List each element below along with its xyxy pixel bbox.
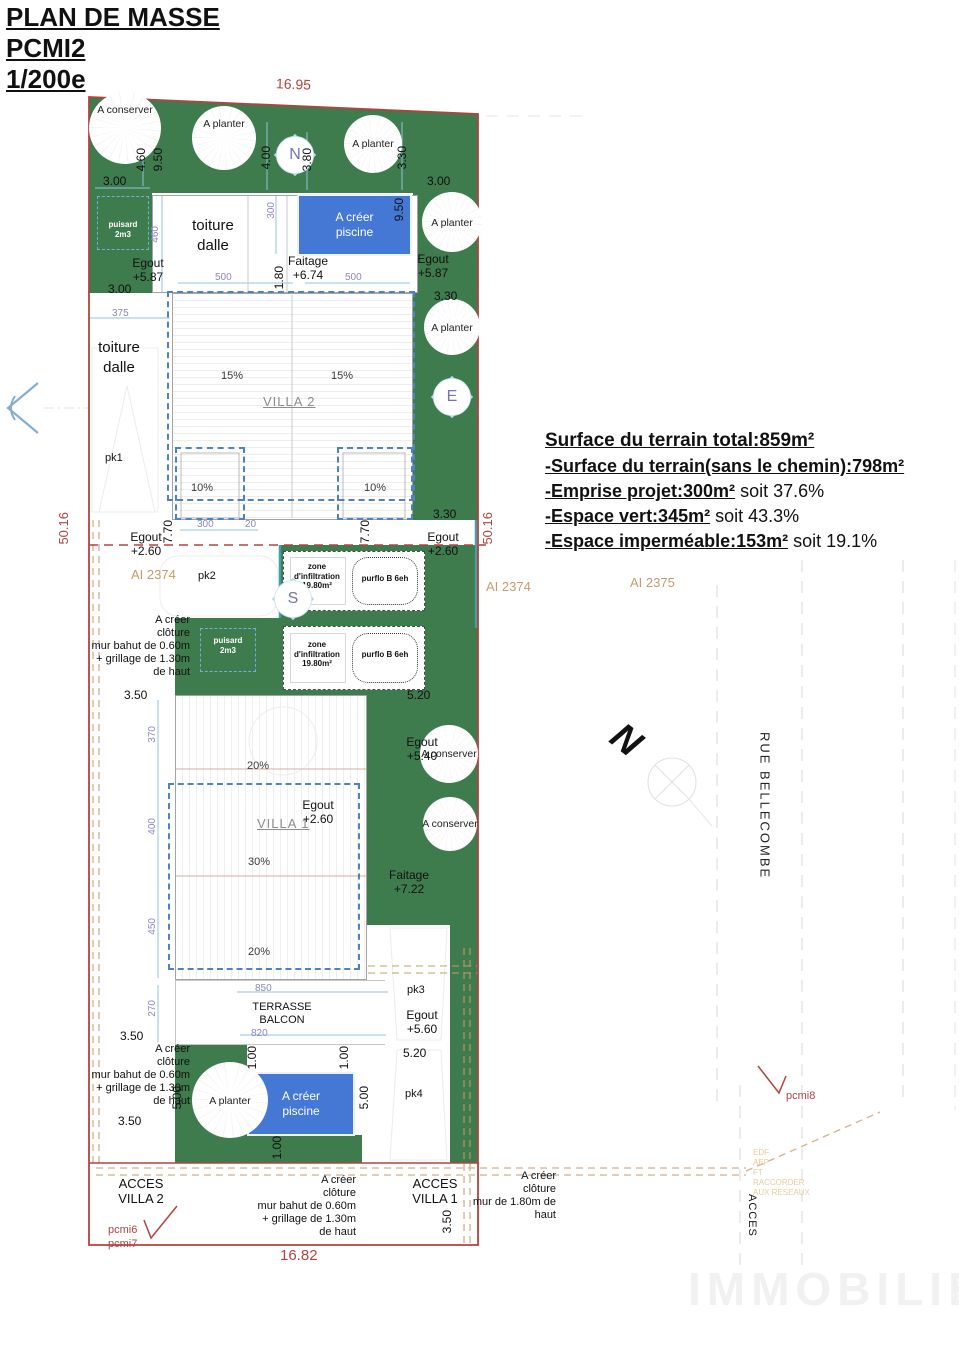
title-line: PCMI2 [6,33,220,64]
surface-item: -Espace imperméable:153m² soit 19.1% [545,531,904,552]
egout-level-label: Egout +2.60 [115,530,177,558]
boundary-dim-left: 50.16 [56,512,71,545]
surface-summary: Surface du terrain total:859m² -Surface … [545,430,904,552]
dim-label: 3.80 [300,148,314,171]
puisard-label: puisard 2m3 [99,220,147,239]
parking-label: pk2 [198,570,216,583]
surface-item-rest: soit 37.6% [735,481,824,501]
pool-label: A créer piscine [335,210,373,240]
road-edges [486,116,955,1268]
parking-band-pk3-pk4 [385,925,450,1163]
dim-label: 270 [147,1000,159,1017]
dim-label: 370 [147,726,159,743]
north-arrow-letter: N [601,714,650,766]
dim-label: 7.70 [358,520,372,543]
dim-label: 5.00 [170,1086,184,1109]
egout-level-label: Egout +5.87 [118,256,178,284]
dim-label: 4.60 [134,148,148,171]
roof-label-toiture-dalle: toiture dalle [88,338,150,377]
parcel-label: AI 2374 [486,579,531,594]
dim-label: 500 [215,272,232,284]
infiltration-zone-label: zone d'infiltration 19.80m² [288,640,346,669]
dim-label: 5.00 [357,1086,371,1109]
surface-item-rest: soit 19.1% [788,531,877,551]
terrace-label: TERRASSE BALCON [237,1001,327,1027]
surface-item-strong: -Emprise projet:300m² [545,481,735,501]
camera-view-icon [8,383,88,433]
dim-label: 1.80 [272,266,286,289]
tree-label: A planter [199,1095,261,1107]
slope-label: 20% [248,946,270,959]
fence-note: A créer clôture mur bahut de 0.60m + gri… [228,1174,356,1239]
dim-label: 1.00 [337,1046,351,1069]
access-label-villa2: ACCES VILLA 2 [106,1176,176,1207]
boundary-dim-top: 16.95 [276,75,312,93]
dim-label: 5.20 [407,688,430,702]
tree-label: A planter [421,217,483,229]
dim-label: 4.00 [259,146,273,169]
boundary-dim-bottom: 16.82 [280,1247,318,1265]
photo-ref: pcmi7 [108,1238,137,1251]
green-area-under-pool [247,1135,362,1163]
east-compass-icon: E [429,374,475,420]
dim-label: 375 [112,308,129,320]
drawing-title: PLAN DE MASSE PCMI2 1/200e [6,2,220,95]
dim-label: 3.30 [434,289,457,303]
tree-label: A planter [192,118,256,130]
slope-label: 15% [221,370,243,383]
faitage-level-label: Faitage +6.74 [283,254,333,282]
dim-label: 400 [147,818,159,835]
villa2-name: VILLA 2 [263,394,316,409]
surface-item: -Emprise projet:300m² soit 37.6% [545,481,904,502]
dim-label: 850 [255,983,272,995]
tree-label: A planter [421,322,483,334]
parcel-label: AI 2374 [131,567,176,582]
faitage-level-label: Faitage +7.22 [383,868,435,896]
surface-item-strong: -Surface du terrain(sans le chemin):798m… [545,456,904,476]
dim-label: 820 [251,1028,268,1040]
tree-label: A conserver [90,104,160,116]
slope-label: 20% [247,760,269,773]
surface-item-strong: -Espace imperméable:153m² [545,531,788,551]
green-area-right-sliver [450,925,478,1163]
puisard-label: puisard 2m3 [202,636,254,655]
slope-label: 15% [331,370,353,383]
surface-item-rest: soit 43.3% [710,506,799,526]
roof-label-toiture-dalle: toiture dalle [178,216,248,255]
dim-label: 1.00 [270,1136,284,1159]
parcel-label: AI 2375 [630,575,675,590]
site-plan-page: zone d'infiltration 19.80m² purflo B 6eh… [0,0,959,1354]
dim-label: 300 [266,202,278,219]
egout-level-label: Egout +5.60 [396,1008,448,1036]
dim-label: 450 [147,918,159,935]
surface-item: -Espace vert:345m² soit 43.3% [545,506,904,527]
dim-label: 3.30 [395,146,409,169]
surface-total: Surface du terrain total:859m² [545,430,904,452]
dim-label: 20 [245,519,256,531]
street-name: RUE BELLECOMBE [757,732,772,879]
egout-level-label: Egout +2.60 [415,530,471,558]
fence-note: A créer clôture mur bahut de 0.60m + gri… [58,614,190,679]
dim-label: 3.30 [433,507,456,521]
slope-label: 10% [191,482,213,495]
photo-ref: pcmi8 [786,1090,815,1103]
egout-level-label: Egout +2.60 [292,798,344,826]
dim-label: 5.20 [403,1046,426,1060]
dim-label: 3.00 [103,174,126,188]
south-compass-icon: S [270,576,316,622]
dim-label: 3.50 [120,1029,143,1043]
parking-label: pk3 [407,984,425,997]
parking-label: pk1 [105,452,123,465]
dim-label: 1.00 [245,1046,259,1069]
title-line: 1/200e [6,64,220,95]
dim-label: 3.50 [118,1114,141,1128]
surface-item-strong: -Espace vert:345m² [545,506,710,526]
surface-item: -Surface du terrain(sans le chemin):798m… [545,456,904,477]
utilities-note: EDF AEP FT RACCORDER AUX RESEAUX [753,1148,810,1198]
watermark: IMMOBILIER [688,1262,959,1316]
dim-label: 500 [345,272,362,284]
photo-ref: pcmi6 [108,1224,137,1237]
road-access-label: ACCES [745,1194,758,1237]
dim-label: 3.00 [427,174,450,188]
boundary-dim-right: 50.16 [480,512,495,545]
compass-letter: E [433,378,471,416]
tree-circle [192,106,256,170]
slope-label: 10% [364,482,386,495]
egout-level-label: Egout +5.87 [405,252,461,280]
egout-level-label: Egout +5.40 [396,735,448,763]
dim-label: 3.50 [124,688,147,702]
slope-label: 30% [248,856,270,869]
filter-label: purflo B 6eh [352,574,418,584]
parking-label: pk4 [405,1088,423,1101]
compass-letter: S [274,580,312,618]
dim-label: 300 [197,519,214,531]
title-line: PLAN DE MASSE [6,2,220,33]
dim-label: 460 [150,226,162,243]
filter-label: purflo B 6eh [352,650,418,660]
dim-label: 3.50 [440,1210,454,1233]
dim-label: 9.50 [392,198,406,221]
pool-label: A créer piscine [282,1089,320,1119]
tree-label: A conserver [415,818,485,830]
dim-label: 9.50 [151,148,165,171]
access-label-villa1: ACCES VILLA 1 [400,1176,470,1207]
fence-note-high: A créer clôture mur de 1.80m de haut [468,1170,556,1222]
dim-label: 3.00 [108,282,131,296]
